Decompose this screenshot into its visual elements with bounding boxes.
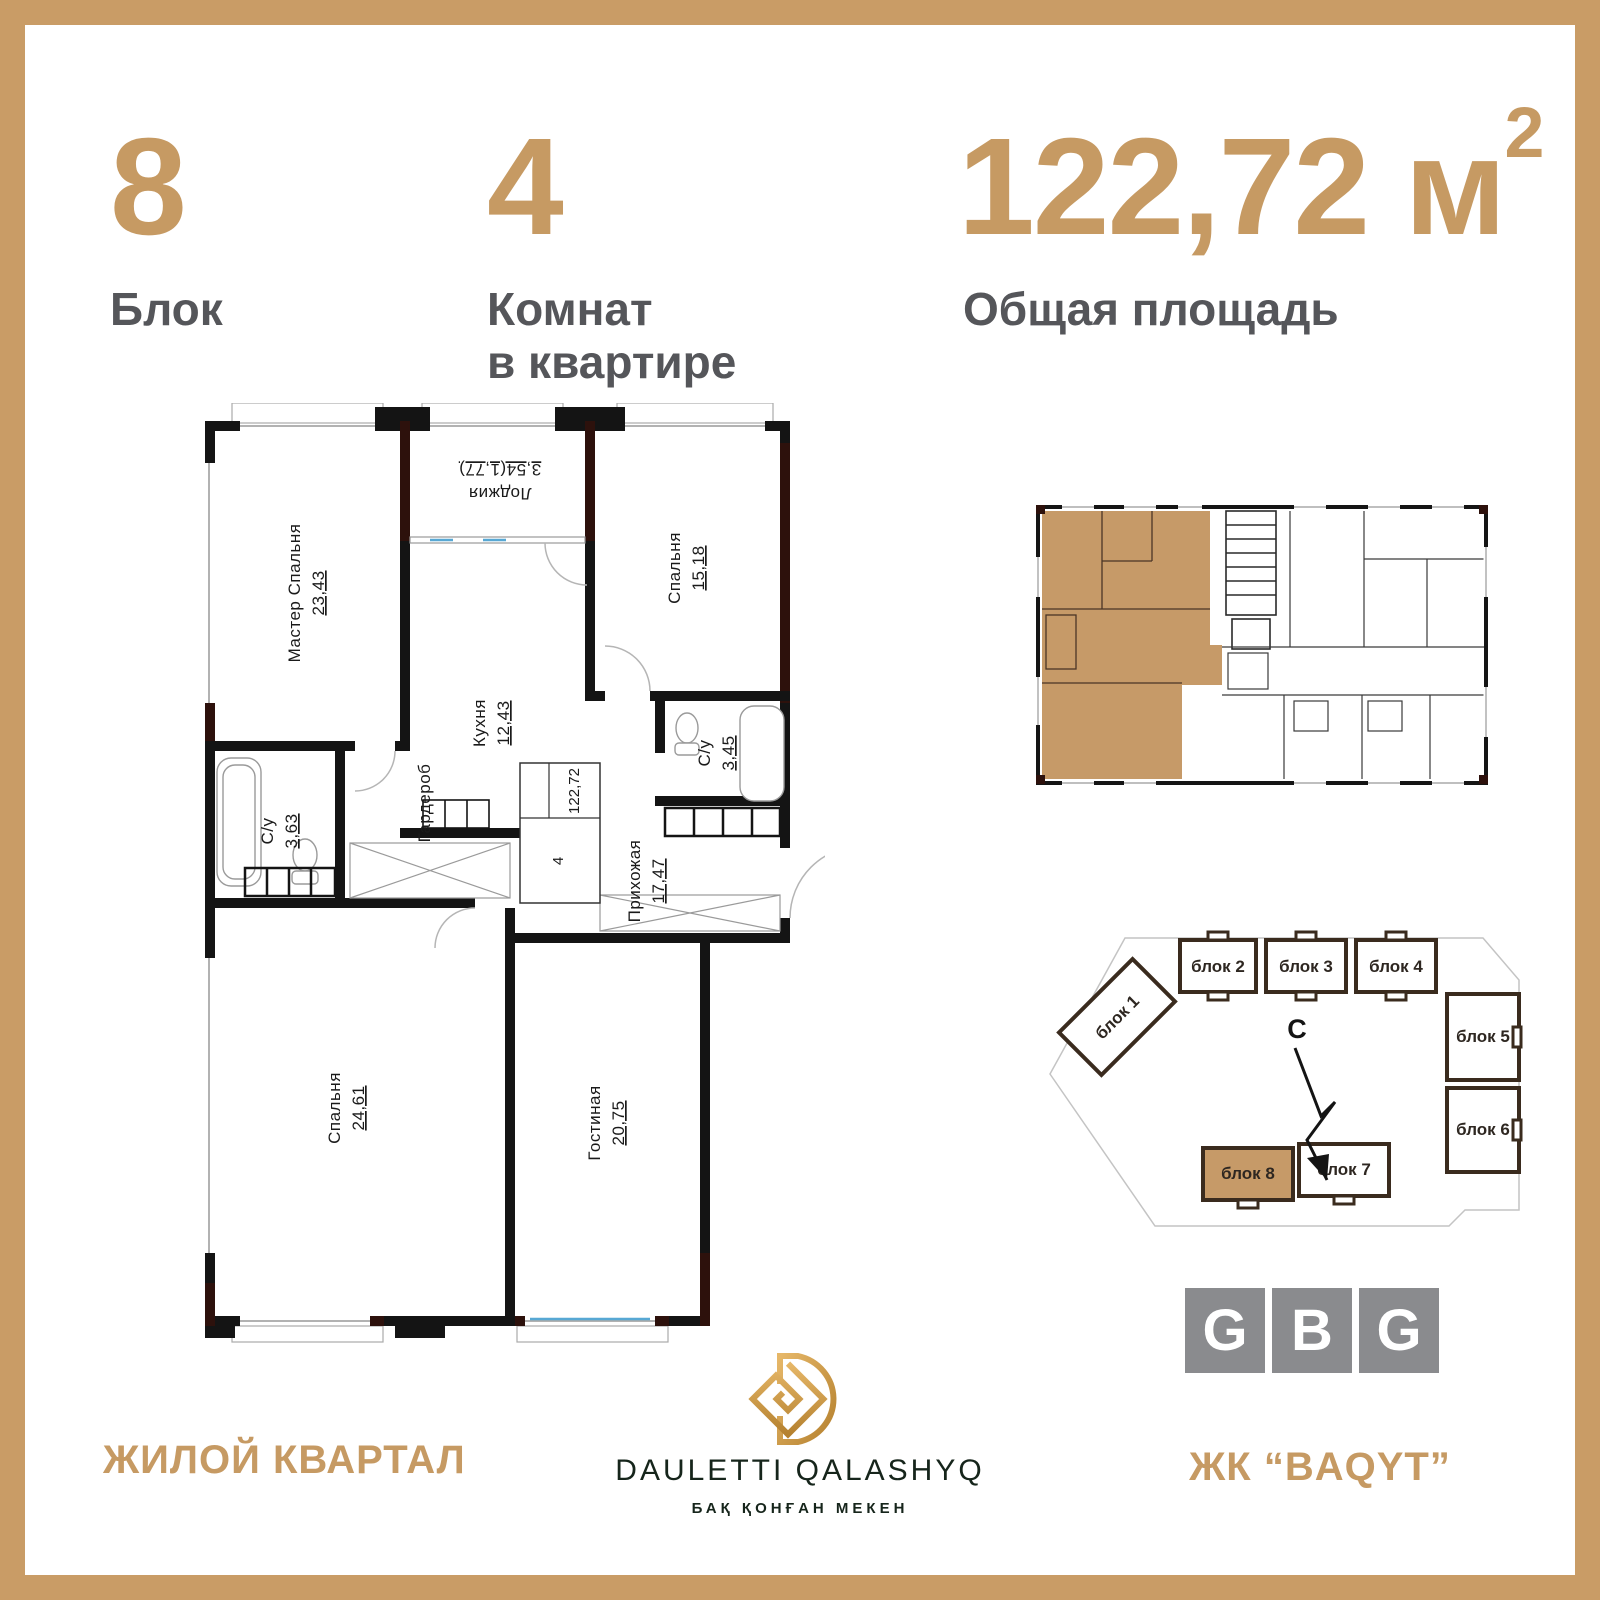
- total-area-label: Общая площадь: [963, 283, 1339, 336]
- svg-text:Спальня: Спальня: [325, 1072, 344, 1144]
- svg-text:блок 5: блок 5: [1456, 1027, 1510, 1046]
- room-label-bathroom-1: С/у 3,63: [258, 813, 301, 848]
- svg-text:3,63: 3,63: [282, 813, 301, 848]
- gbg-letter-3: G: [1359, 1288, 1439, 1373]
- brand-spiral: [753, 1364, 824, 1435]
- total-area-sup: 2: [1505, 93, 1545, 173]
- window-bays-top: [232, 403, 773, 423]
- svg-text:3,54(1,77): 3,54(1,77): [459, 460, 542, 479]
- svg-text:Кухня: Кухня: [470, 699, 489, 747]
- slatted-builtins: [245, 808, 780, 896]
- stamp-total-area: 122,72: [566, 768, 583, 814]
- total-area-number: 122,72 м2: [958, 118, 1544, 256]
- gbg-letter-2: B: [1272, 1288, 1352, 1373]
- svg-text:3,45: 3,45: [719, 735, 738, 770]
- floor-overview-plan: [1032, 497, 1492, 792]
- site-plan: блок 1 блок 2 блок 3 блок 4 блок 5 блок …: [1035, 912, 1525, 1242]
- room-label-bedroom-3: Спальня 24,61: [325, 1072, 368, 1144]
- svg-text:блок 6: блок 6: [1456, 1120, 1510, 1139]
- gbg-letter-1: G: [1185, 1288, 1265, 1373]
- room-label-wardrobe: Гардероб: [415, 764, 434, 843]
- footer-left-text: ЖИЛОЙ КВАРТАЛ: [103, 1438, 466, 1483]
- site-block-4: блок 4: [1356, 932, 1436, 1000]
- rooms-number: 4: [487, 118, 562, 256]
- apartment-floorplan: 122,72 4 Мастер Спальня 23,43 Лоджия 3,5…: [205, 403, 825, 1343]
- svg-text:24,61: 24,61: [349, 1085, 368, 1130]
- total-area-value: 122,72: [958, 110, 1368, 264]
- block-number: 8: [110, 118, 185, 256]
- footer-right-text: ЖК “BAQYT”: [1150, 1445, 1490, 1490]
- site-block-2: блок 2: [1180, 932, 1256, 1000]
- total-area-unit: м: [1404, 110, 1504, 264]
- svg-text:блок 8: блок 8: [1221, 1164, 1275, 1183]
- svg-text:Прихожая: Прихожая: [625, 840, 644, 923]
- svg-text:17,47: 17,47: [649, 858, 668, 903]
- svg-text:блок 2: блок 2: [1191, 957, 1245, 976]
- svg-text:15,18: 15,18: [689, 545, 708, 590]
- svg-text:Гардероб: Гардероб: [415, 764, 434, 843]
- stamp-rooms-count: 4: [550, 857, 567, 865]
- svg-text:блок 4: блок 4: [1369, 957, 1423, 976]
- rooms-label-line1: Комнат: [487, 283, 736, 336]
- svg-text:Мастер Спальня: Мастер Спальня: [285, 524, 304, 663]
- site-block-1: блок 1: [1059, 959, 1175, 1075]
- compass-north-letter: С: [1287, 1014, 1307, 1044]
- brand-tagline: БАҚ ҚОНҒАН МЕКЕН: [500, 1500, 1100, 1517]
- area-stamp: 122,72 4: [520, 763, 600, 903]
- svg-text:20,75: 20,75: [609, 1100, 628, 1145]
- site-block-8-highlighted: блок 8: [1203, 1148, 1293, 1208]
- room-label-master-bedroom: Мастер Спальня 23,43: [285, 524, 328, 663]
- svg-text:блок 3: блок 3: [1279, 957, 1333, 976]
- svg-text:С/у: С/у: [258, 818, 277, 845]
- room-label-bedroom-2: Спальня 15,18: [665, 532, 708, 604]
- loggia-glazing: [410, 537, 585, 543]
- svg-text:С/у: С/у: [695, 740, 714, 767]
- window-bays-bottom: [232, 1326, 668, 1342]
- room-label-loggia: Лоджия 3,54(1,77): [459, 460, 542, 503]
- gbg-logo: G B G: [1185, 1288, 1439, 1373]
- svg-text:Лоджия: Лоджия: [468, 484, 531, 503]
- overview-stairwell: [1226, 511, 1276, 649]
- svg-text:Гостиная: Гостиная: [585, 1085, 604, 1160]
- room-label-bathroom-2: С/у 3,45: [695, 735, 738, 770]
- site-block-3: блок 3: [1266, 932, 1346, 1000]
- brand-name: DAULETTI QALASHYQ: [500, 1454, 1100, 1488]
- rooms-label-line2: в квартире: [487, 336, 736, 389]
- site-block-6: блок 6: [1447, 1088, 1521, 1172]
- room-label-living-room: Гостиная 20,75: [585, 1085, 628, 1160]
- block-label: Блок: [110, 283, 223, 336]
- room-label-kitchen: Кухня 12,43: [470, 699, 513, 747]
- svg-text:23,43: 23,43: [309, 570, 328, 615]
- room-label-hallway: Прихожая 17,47: [625, 840, 668, 923]
- site-block-5: блок 5: [1447, 994, 1521, 1080]
- svg-text:Спальня: Спальня: [665, 532, 684, 604]
- brand-logo-mark: [748, 1350, 852, 1446]
- rooms-label: Комнат в квартире: [487, 283, 736, 390]
- svg-text:12,43: 12,43: [494, 700, 513, 745]
